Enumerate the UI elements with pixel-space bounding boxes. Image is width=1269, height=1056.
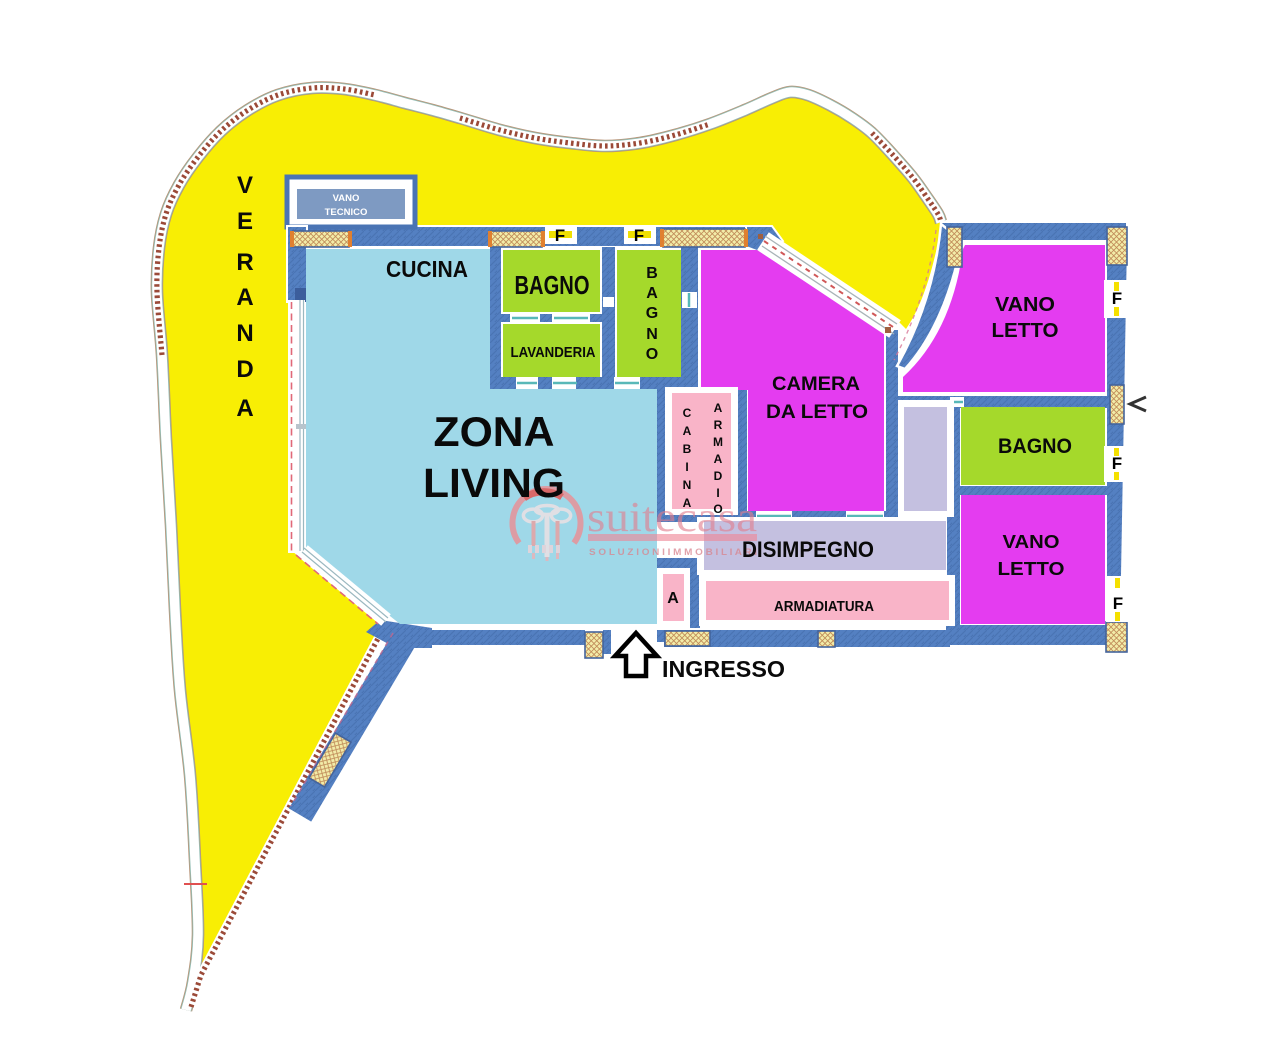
- svg-text:LETTO: LETTO: [998, 558, 1065, 579]
- svg-text:F: F: [634, 226, 644, 245]
- svg-text:LIVING: LIVING: [423, 460, 565, 506]
- svg-text:A: A: [236, 395, 253, 422]
- svg-text:F: F: [1113, 594, 1123, 613]
- svg-text:R: R: [236, 249, 253, 276]
- svg-text:N: N: [646, 326, 658, 343]
- svg-text:I: I: [685, 460, 688, 474]
- svg-text:DISIMPEGNO: DISIMPEGNO: [742, 537, 874, 562]
- svg-text:INGRESSO: INGRESSO: [662, 656, 785, 682]
- svg-text:A: A: [714, 401, 723, 415]
- svg-text:A: A: [683, 496, 692, 510]
- svg-text:R: R: [714, 418, 723, 432]
- svg-text:S O L U Z I O N I I M M O B I: S O L U Z I O N I I M M O B I L I A R I: [589, 547, 757, 558]
- svg-text:N: N: [683, 478, 692, 492]
- svg-text:C: C: [683, 406, 692, 420]
- svg-text:F: F: [1112, 454, 1122, 473]
- svg-text:G: G: [646, 305, 658, 322]
- svg-text:LAVANDERIA: LAVANDERIA: [511, 345, 596, 361]
- svg-text:E: E: [237, 208, 253, 235]
- svg-text:N: N: [236, 320, 253, 347]
- svg-text:CUCINA: CUCINA: [386, 256, 468, 282]
- svg-text:TECNICO: TECNICO: [325, 207, 368, 218]
- svg-text:DA LETTO: DA LETTO: [766, 402, 868, 423]
- svg-text:CAMERA: CAMERA: [772, 374, 860, 395]
- svg-text:O: O: [646, 346, 658, 363]
- svg-text:B: B: [683, 442, 692, 456]
- svg-text:ZONA: ZONA: [434, 408, 555, 455]
- svg-text:BAGNO: BAGNO: [515, 270, 590, 300]
- svg-text:D: D: [714, 469, 723, 483]
- svg-text:V: V: [237, 172, 253, 199]
- svg-text:O: O: [713, 502, 722, 516]
- svg-text:D: D: [236, 356, 253, 383]
- svg-text:BAGNO: BAGNO: [998, 434, 1072, 458]
- svg-text:M: M: [713, 435, 723, 449]
- svg-text:VANO: VANO: [995, 294, 1055, 316]
- svg-text:VANO: VANO: [1003, 531, 1060, 552]
- svg-text:A: A: [714, 452, 723, 466]
- svg-text:F: F: [1112, 289, 1122, 308]
- svg-text:A: A: [646, 285, 658, 302]
- svg-text:A: A: [236, 284, 253, 311]
- svg-text:B: B: [646, 265, 658, 282]
- svg-text:I: I: [716, 486, 719, 500]
- svg-text:VANO: VANO: [333, 193, 360, 204]
- svg-text:A: A: [667, 590, 679, 607]
- svg-text:A: A: [683, 424, 692, 438]
- svg-text:LETTO: LETTO: [992, 320, 1059, 342]
- svg-text:ARMADIATURA: ARMADIATURA: [774, 599, 874, 615]
- svg-text:F: F: [555, 226, 565, 245]
